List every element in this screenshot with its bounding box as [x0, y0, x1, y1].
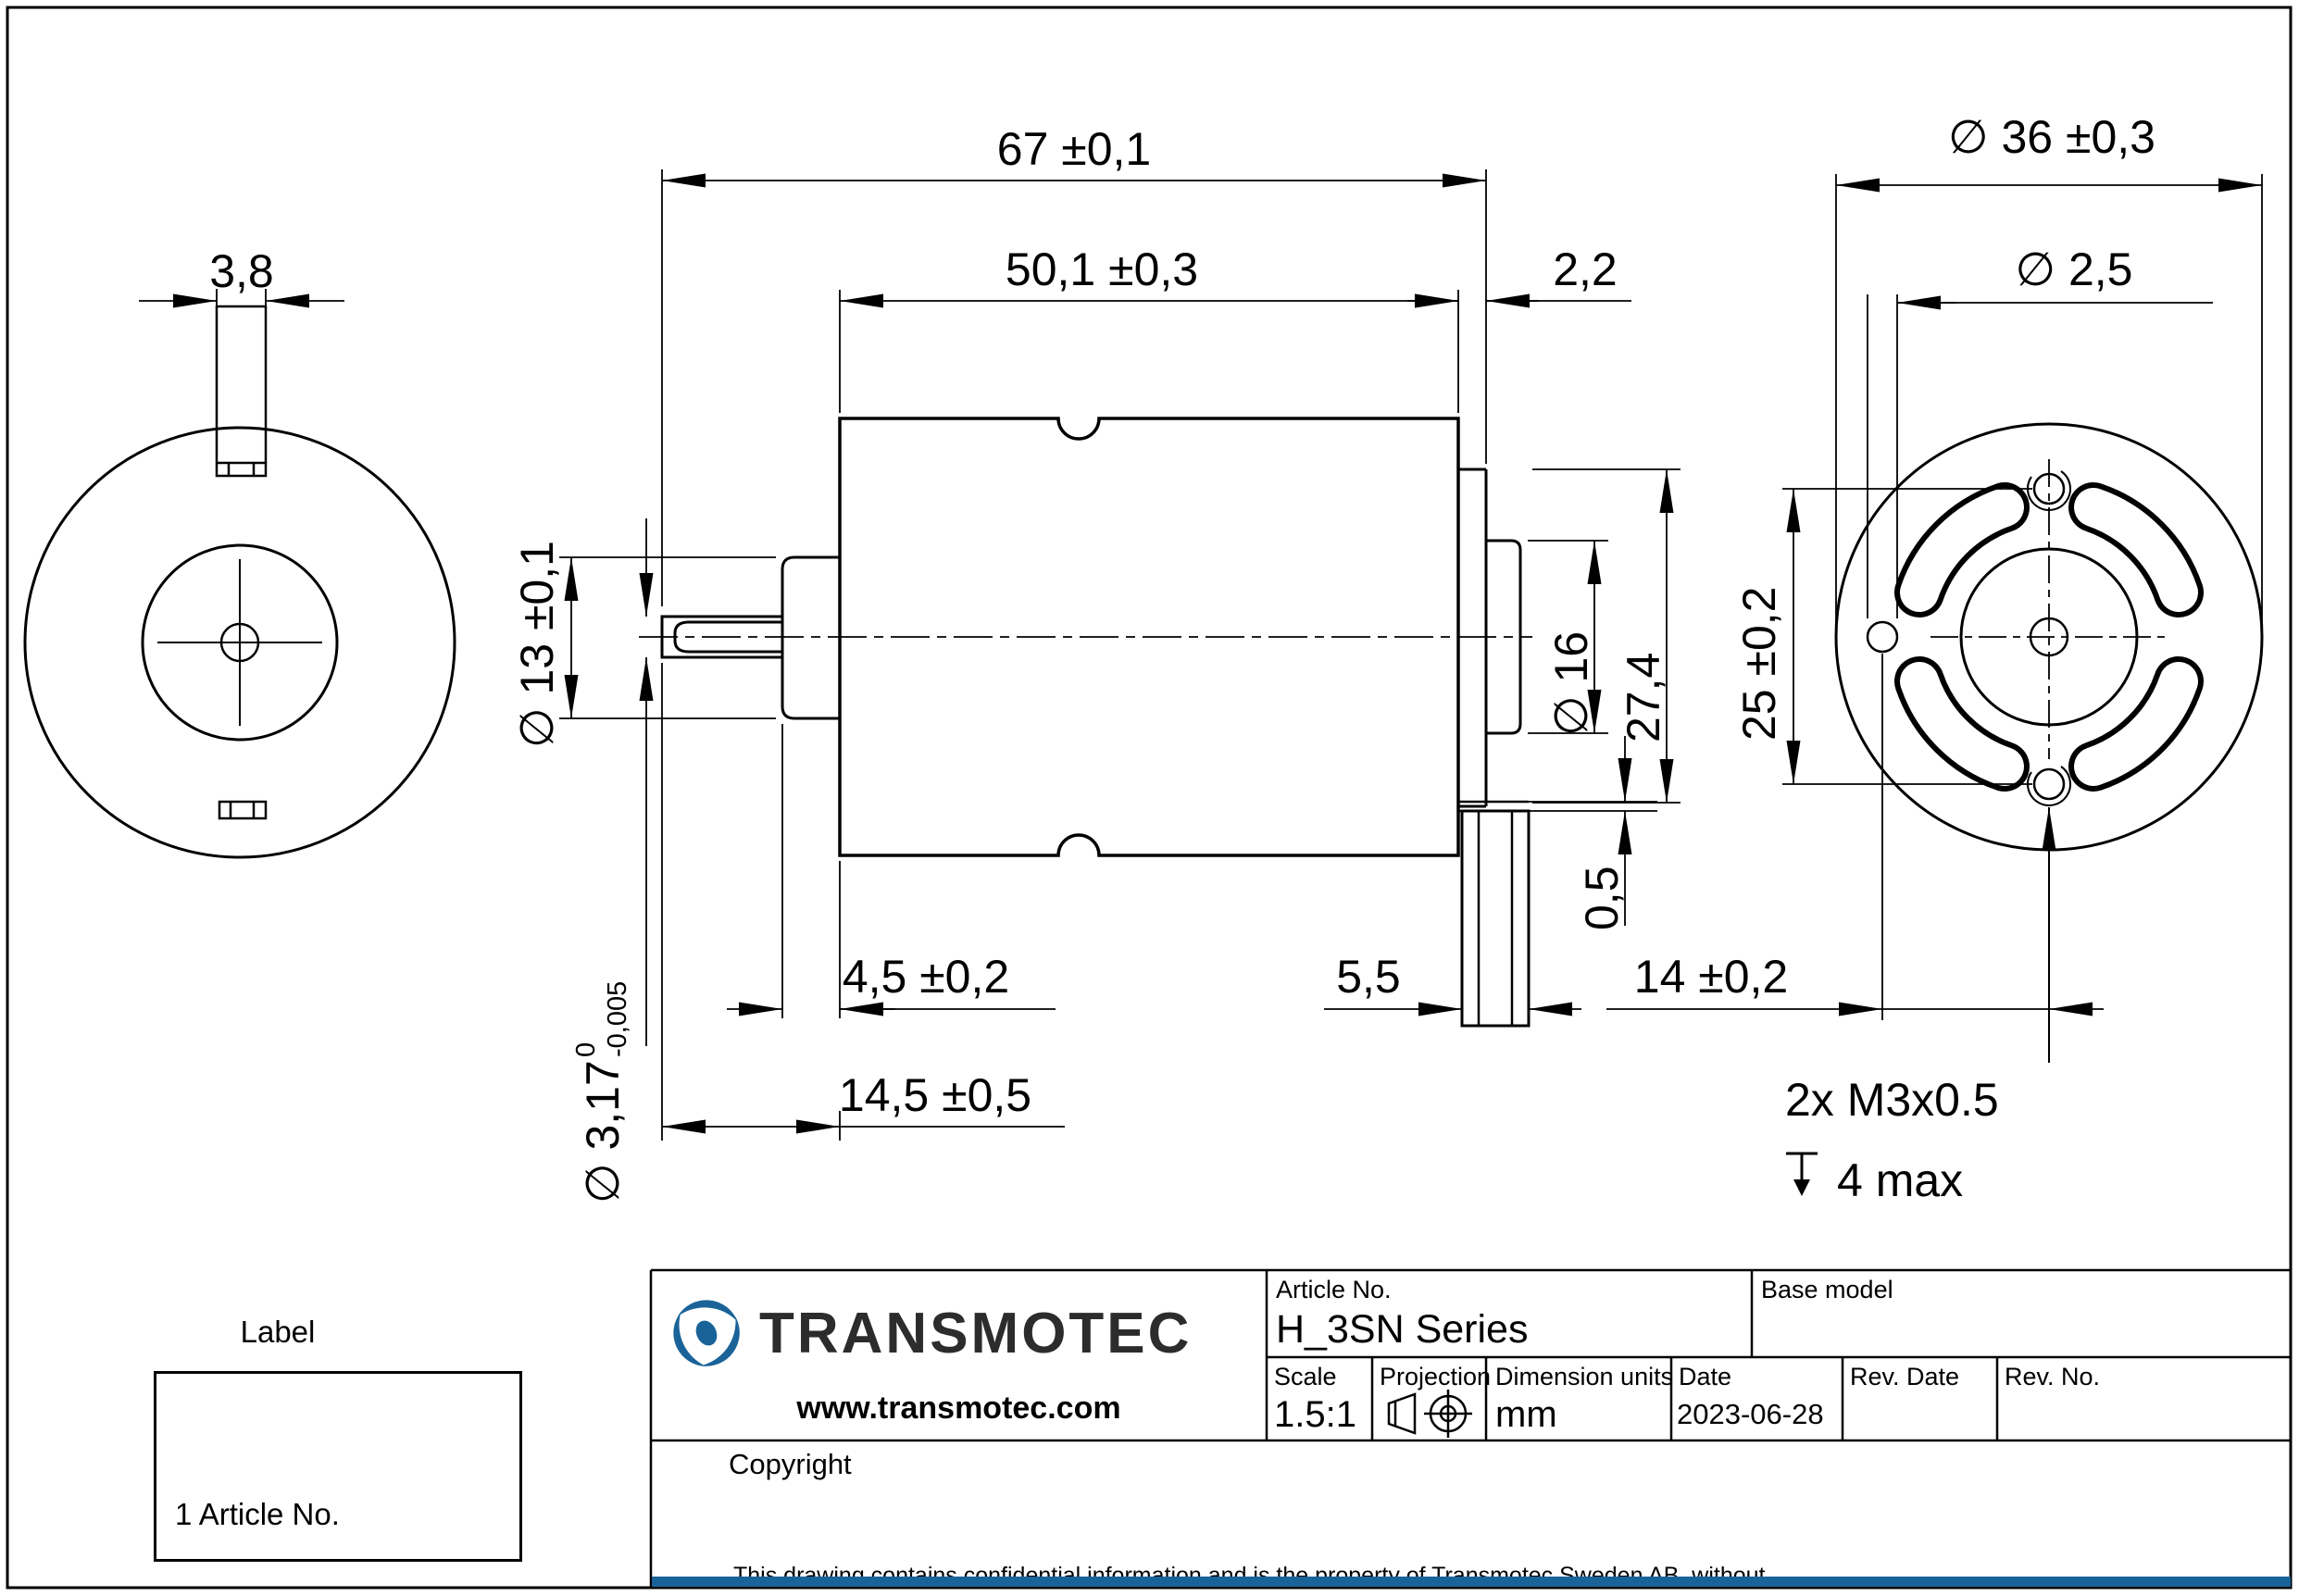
dim-hole-spacing: 25 ±0,2 [1733, 587, 1785, 741]
footer-accent-bar [652, 1577, 2291, 1587]
label-line-1: 1 Article No. [175, 1490, 519, 1538]
units-label: Dimension units [1495, 1363, 1673, 1391]
thread-note: 2x M3x0.5 [1785, 1074, 1999, 1126]
rear-view [1606, 174, 2262, 1196]
dim-shaft-tol-upper: 0 [571, 1042, 601, 1057]
article-no-value: H_3SN Series [1276, 1307, 1528, 1353]
dim-shaft-diameter: ∅ 3,17 [577, 1060, 629, 1203]
transmotec-logo-icon [668, 1287, 744, 1384]
first-angle-projection-icon [1381, 1387, 1483, 1445]
drawing-sheet: 3,8 [0, 0, 2299, 1596]
date-value: 2023-06-28 [1677, 1398, 1824, 1431]
dim-body-length: 50,1 ±0,3 [1006, 243, 1198, 295]
scale-value: 1.5:1 [1274, 1394, 1356, 1436]
brand-website: www.transmotec.com [651, 1390, 1267, 1427]
depth-symbol [1786, 1153, 1818, 1196]
label-title: Label [185, 1315, 370, 1350]
label-box: 1 Article No. Date: YY.MM.DD www.transmo… [154, 1371, 522, 1562]
date-label: Date [1679, 1363, 1731, 1391]
base-model-label: Base model [1761, 1276, 1893, 1304]
rev-no-label: Rev. No. [2005, 1363, 2100, 1391]
dim-small-hole-diameter: ∅ 2,5 [2016, 243, 2133, 295]
front-view [25, 289, 455, 857]
dim-total-length: 67 ±0,1 [997, 123, 1151, 175]
dim-shaft-tol-lower: -0,005 [603, 981, 632, 1057]
dim-tab-width: 3,8 [209, 245, 274, 297]
dim-hole-offset: 14 ±0,2 [1634, 951, 1788, 1003]
dim-plate-thickness: 0,5 [1576, 866, 1628, 930]
dim-rear-height: 27,4 [1618, 653, 1669, 742]
article-no-label: Article No. [1276, 1276, 1392, 1304]
thread-depth: 4 max [1837, 1154, 1963, 1206]
dim-terminal-length: 5,5 [1336, 951, 1401, 1003]
rev-date-label: Rev. Date [1850, 1363, 1959, 1391]
dim-shaft-length: 14,5 ±0,5 [839, 1069, 1031, 1121]
scale-label: Scale [1274, 1363, 1337, 1391]
dim-hub-length: 4,5 ±0,2 [843, 951, 1009, 1003]
side-view [559, 169, 1681, 1141]
brand-name: TRANSMOTEC [759, 1301, 1192, 1366]
dim-boss-diameter: ∅ 13 ±0,1 [511, 541, 563, 748]
dim-front-diameter: ∅ 36 ±0,3 [1948, 111, 2155, 163]
dim-rear-length: 2,2 [1553, 243, 1618, 295]
copyright-label: Copyright [729, 1448, 852, 1481]
dim-rear-boss-diameter: ∅ 16 [1545, 631, 1597, 736]
units-value: mm [1495, 1394, 1557, 1436]
